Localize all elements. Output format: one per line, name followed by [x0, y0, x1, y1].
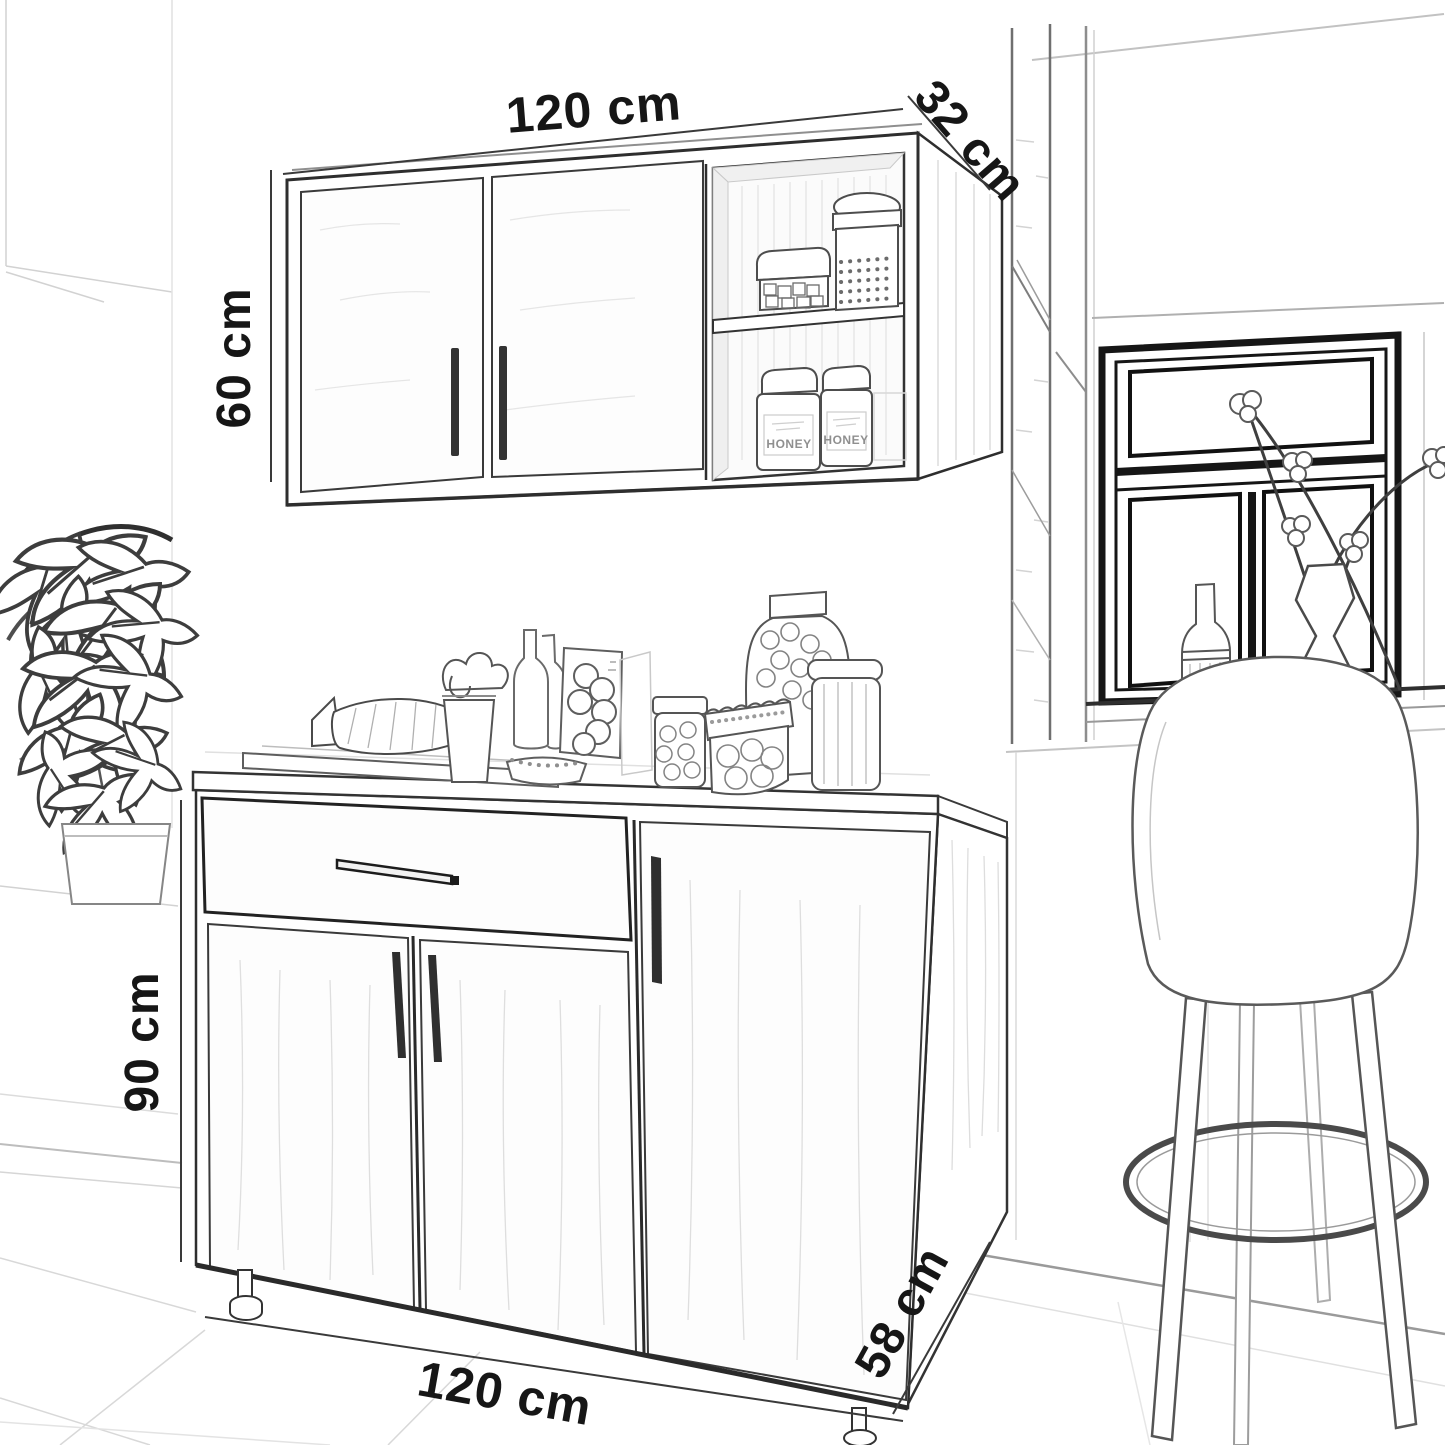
base-door-middle [420, 940, 636, 1352]
wall-cabinet: HONEY HONEY [287, 124, 1002, 505]
dimension-label-base-height: 90 cm [116, 971, 169, 1112]
wall-cabinet-handle-right [499, 346, 507, 460]
base-door-handle-right [651, 856, 662, 984]
olive-jar [653, 697, 707, 787]
wall-cabinet-door-right [492, 161, 703, 477]
plant-pot [62, 824, 170, 904]
bowl [507, 757, 586, 784]
sketch-canvas: HONEY HONEY 120 cm 32 cm 60 cm [0, 0, 1445, 1445]
ribbed-jar [808, 660, 882, 790]
stool-seat-back [1133, 657, 1418, 1005]
granule-jar [833, 193, 901, 310]
cracker-box [560, 648, 622, 758]
sugar-cube-jar [757, 248, 830, 310]
sketch-sheet: HONEY HONEY 120 cm 32 cm 60 cm [0, 0, 1445, 1445]
honey-jar-right: HONEY [821, 366, 872, 466]
wall-cabinet-open-shelf: HONEY HONEY [706, 153, 906, 480]
honey-jar-left: HONEY [757, 368, 820, 470]
dimension-label-wall-height: 60 cm [208, 287, 261, 428]
cloth-top-jar [705, 699, 793, 794]
honey-label-left: HONEY [766, 437, 811, 451]
honey-label-right: HONEY [823, 433, 868, 447]
wall-cabinet-handle-left [451, 348, 459, 456]
base-door-left [208, 924, 414, 1308]
